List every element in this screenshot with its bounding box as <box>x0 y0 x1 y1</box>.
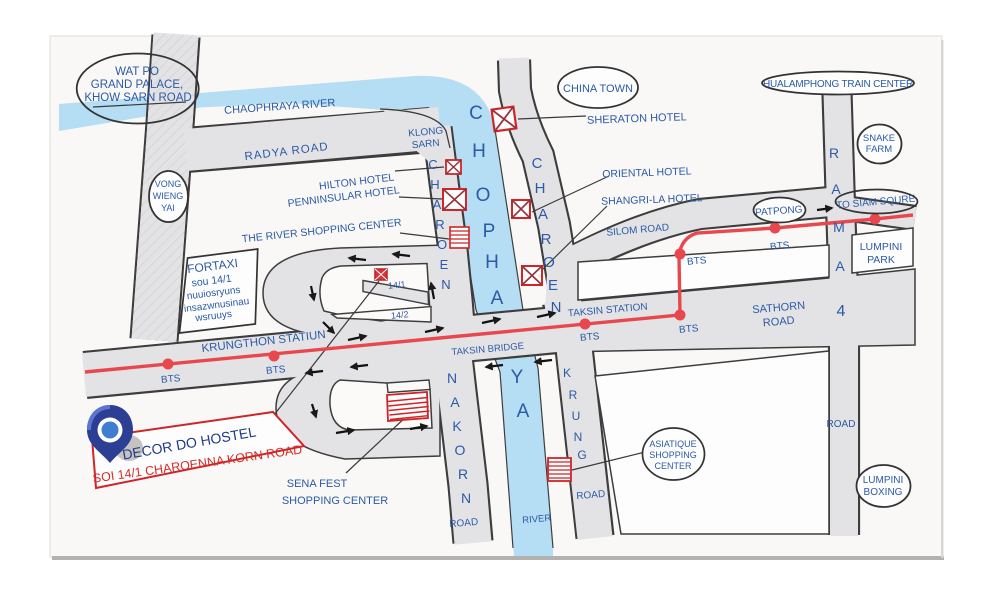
svg-text:A: A <box>433 197 442 212</box>
svg-text:WIENG: WIENG <box>153 191 184 201</box>
svg-text:C: C <box>428 157 437 172</box>
svg-text:U: U <box>572 409 581 423</box>
svg-text:R: R <box>569 388 578 402</box>
svg-text:BTS: BTS <box>679 323 700 336</box>
svg-text:G: G <box>577 448 586 462</box>
svg-text:HUALAMPHONG TRAIN CENTER: HUALAMPHONG TRAIN CENTER <box>763 79 913 90</box>
svg-text:A: A <box>835 258 845 274</box>
svg-text:A: A <box>491 288 504 309</box>
svg-text:H: H <box>485 252 499 273</box>
svg-text:ASIATIQUE: ASIATIQUE <box>649 439 696 449</box>
svg-text:14/2: 14/2 <box>391 309 409 320</box>
svg-text:BTS: BTS <box>161 373 182 386</box>
svg-text:A: A <box>517 401 530 422</box>
svg-text:N: N <box>461 490 471 506</box>
svg-text:R: R <box>541 231 552 248</box>
svg-text:LUMPINI: LUMPINI <box>863 475 904 486</box>
svg-text:K: K <box>452 418 462 434</box>
svg-text:ROAD: ROAD <box>827 419 856 430</box>
svg-text:BTS: BTS <box>580 331 601 344</box>
svg-text:E: E <box>548 277 558 294</box>
svg-text:C: C <box>469 103 483 124</box>
svg-text:BTS: BTS <box>266 364 287 377</box>
svg-text:N: N <box>441 277 450 292</box>
svg-text:FARM: FARM <box>866 144 892 155</box>
svg-text:CHINA TOWN: CHINA TOWN <box>563 83 633 95</box>
svg-text:A: A <box>831 181 841 197</box>
svg-text:N: N <box>551 299 562 316</box>
svg-text:Y: Y <box>511 367 524 388</box>
svg-text:YAI: YAI <box>161 203 175 213</box>
svg-text:SHOPPING CENTER: SHOPPING CENTER <box>282 495 388 507</box>
svg-text:SHOPPING: SHOPPING <box>649 450 697 460</box>
svg-text:E: E <box>440 257 449 272</box>
svg-text:LUMPINI: LUMPINI <box>860 241 903 253</box>
svg-text:CENTER: CENTER <box>654 461 692 471</box>
svg-text:4: 4 <box>837 303 846 320</box>
svg-text:N: N <box>574 430 583 444</box>
svg-text:VONG: VONG <box>155 179 182 189</box>
svg-text:H: H <box>535 180 546 197</box>
svg-text:O: O <box>543 254 555 271</box>
svg-text:R: R <box>829 145 839 161</box>
svg-text:H: H <box>472 141 486 162</box>
svg-text:BTS: BTS <box>770 240 791 253</box>
svg-text:SENA FEST: SENA FEST <box>287 478 348 490</box>
svg-text:14/1: 14/1 <box>388 279 406 290</box>
svg-text:R: R <box>435 217 444 232</box>
svg-text:K: K <box>563 366 571 380</box>
svg-text:A: A <box>450 394 460 410</box>
svg-text:R: R <box>458 466 468 482</box>
svg-text:O: O <box>476 185 491 206</box>
svg-text:N: N <box>447 370 457 386</box>
svg-text:A: A <box>538 206 548 223</box>
svg-text:P: P <box>483 221 496 242</box>
svg-text:PARK: PARK <box>867 254 895 266</box>
svg-text:H: H <box>430 177 439 192</box>
svg-text:KHOW SARN ROAD: KHOW SARN ROAD <box>84 92 191 104</box>
svg-text:O: O <box>455 442 466 458</box>
svg-text:SNAKE: SNAKE <box>863 133 895 144</box>
svg-text:M: M <box>833 219 845 235</box>
svg-text:O: O <box>437 237 447 252</box>
svg-text:C: C <box>532 155 543 172</box>
svg-text:WAT PO: WAT PO <box>115 66 159 78</box>
svg-text:GRAND PALACE,: GRAND PALACE, <box>91 79 183 91</box>
svg-text:BOXING: BOXING <box>864 487 903 498</box>
svg-text:BTS: BTS <box>687 255 708 268</box>
